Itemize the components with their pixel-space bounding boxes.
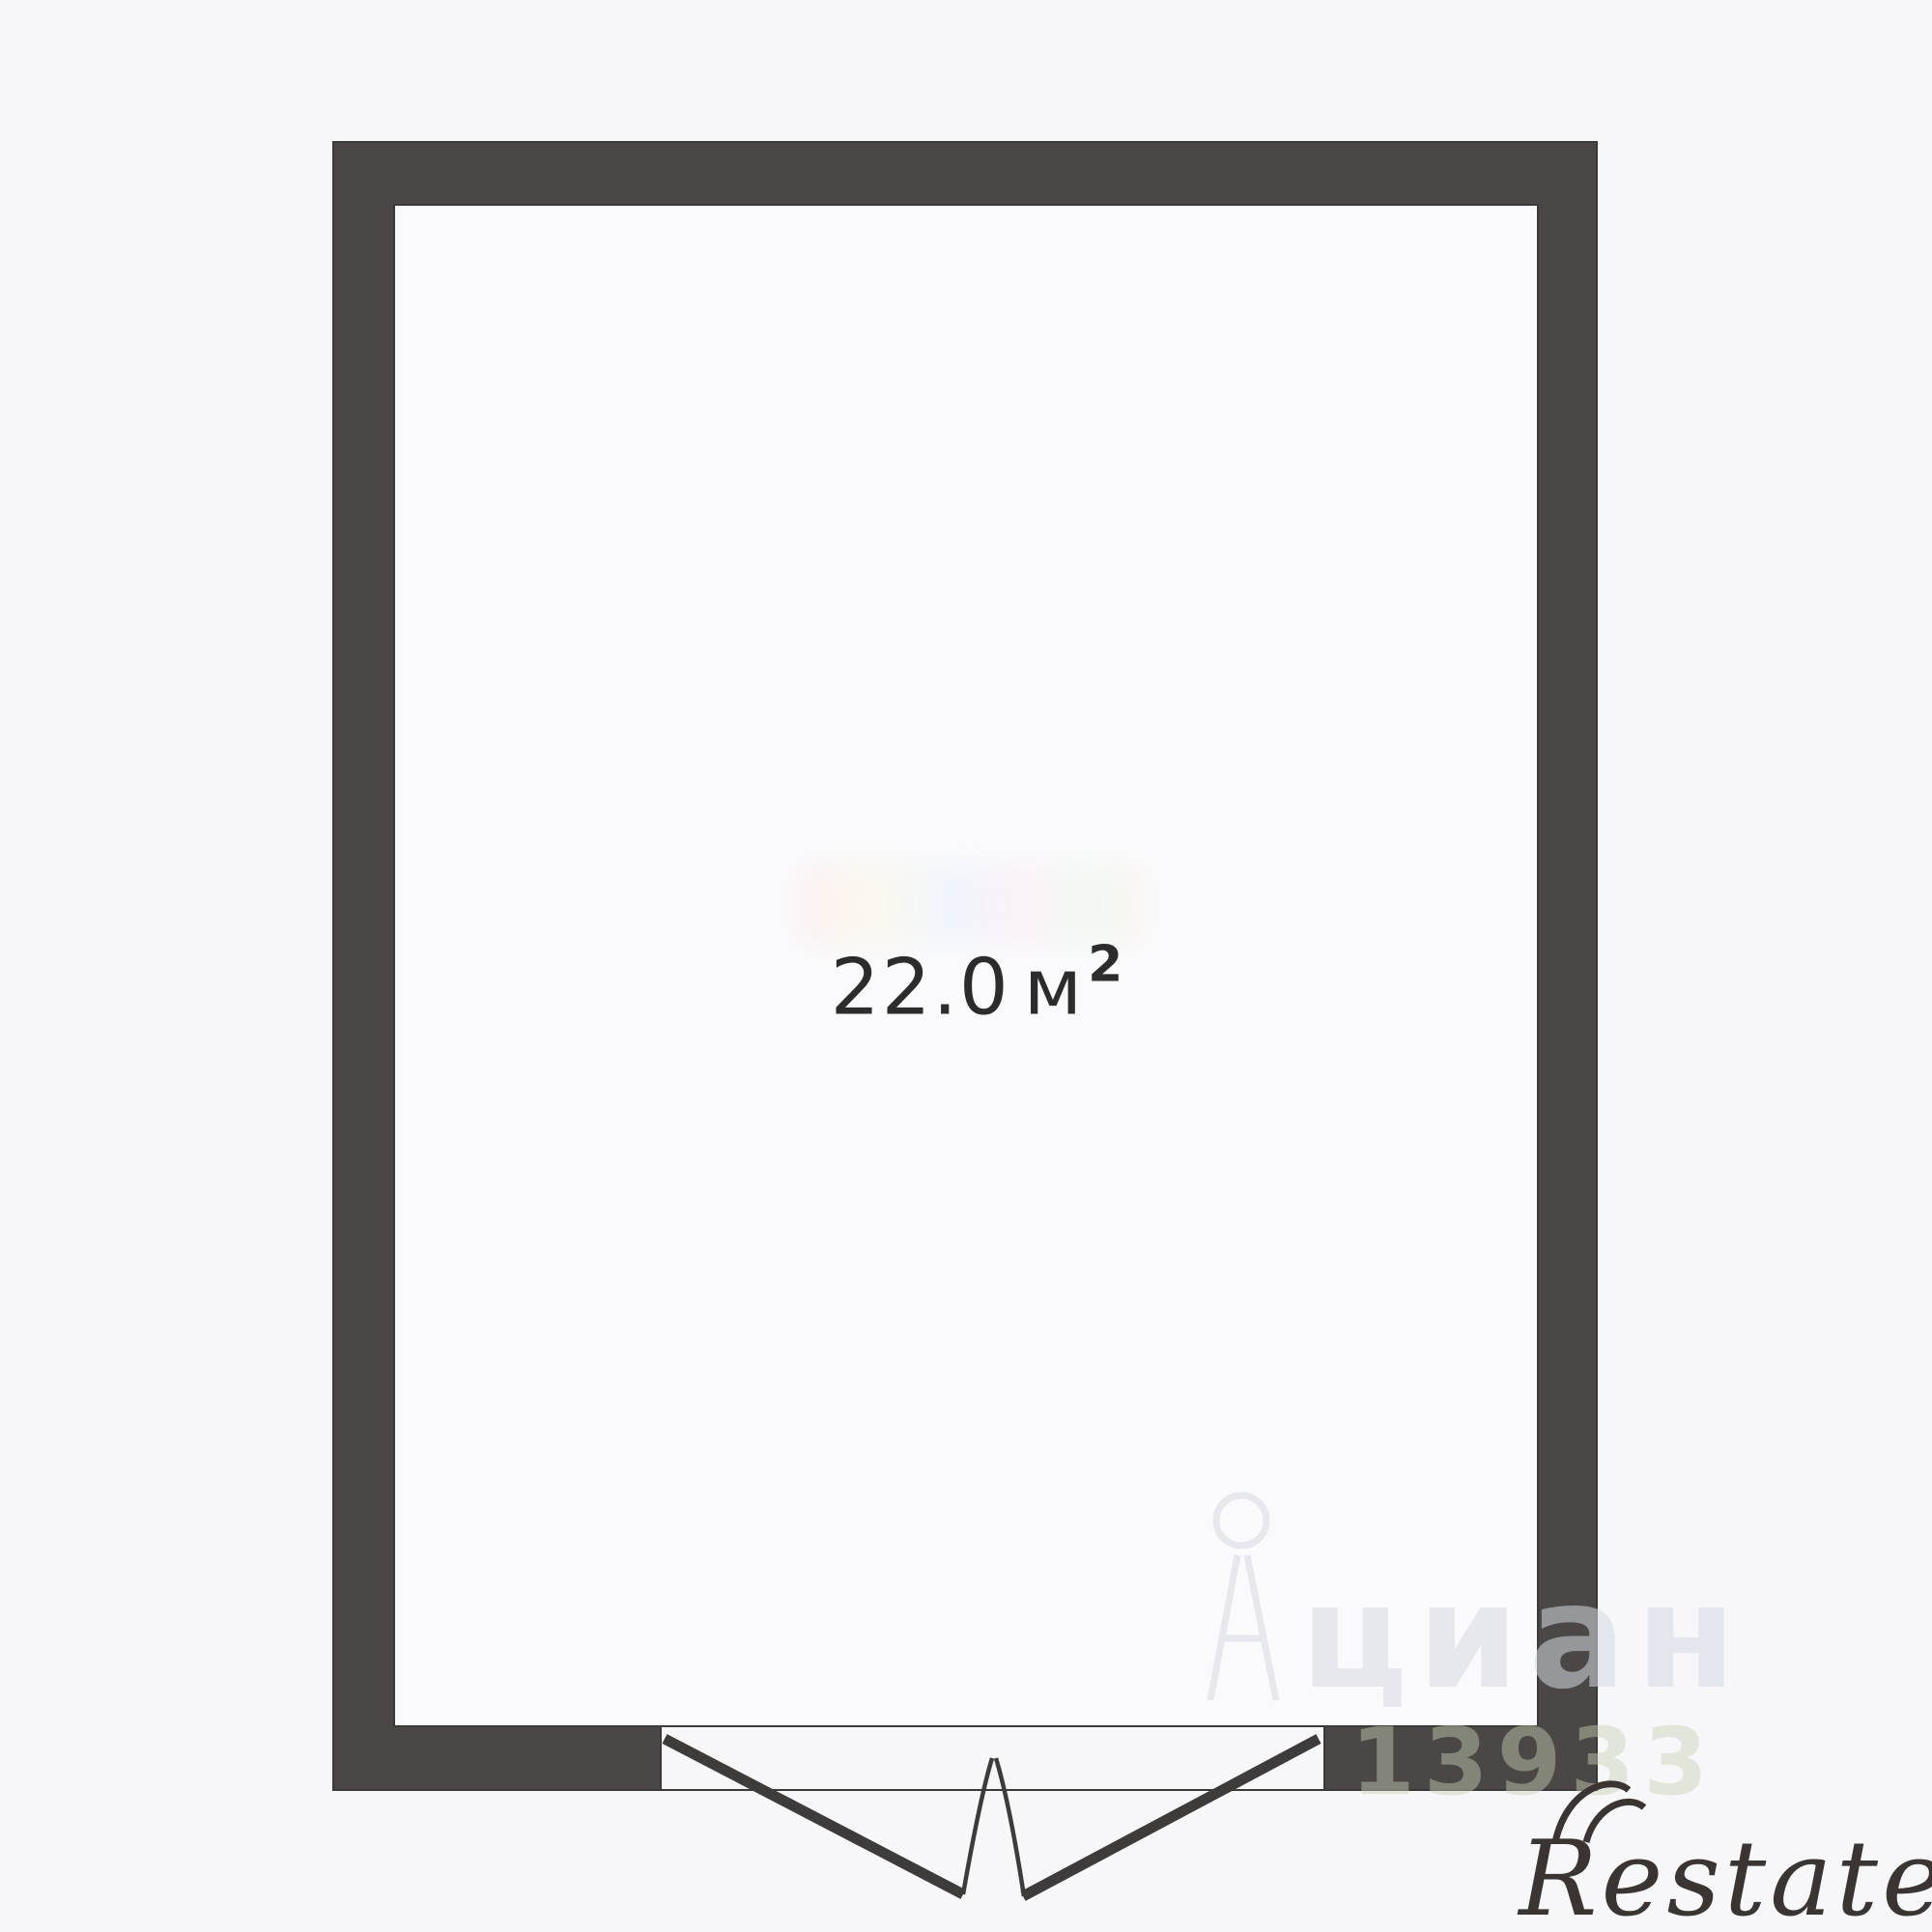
door-swing-line-left <box>963 1758 992 1894</box>
cian-watermark-logo-text: циан <box>1300 1553 1746 1721</box>
faint-watermark-smudge <box>798 866 1142 945</box>
cian-pin-head <box>1216 1495 1266 1546</box>
area-value: 22.0 <box>831 943 1010 1033</box>
area-superscript: 2 <box>1088 936 1124 994</box>
door-leaf-right <box>1023 1739 1319 1896</box>
door-leaf-left <box>665 1739 963 1894</box>
cian-pin-legs <box>1210 1555 1276 1700</box>
restate-watermark: Restate <box>1519 1819 1932 1932</box>
floorplan-canvas: 22.0м2 циан 13933 Restate <box>0 0 1932 1932</box>
room-area-label: 22.0м2 <box>831 943 1122 1033</box>
restate-swash-icon <box>1548 1765 1663 1846</box>
area-unit: м <box>1024 943 1084 1033</box>
cian-pin-icon <box>1191 1482 1297 1706</box>
door-swing-line-right <box>996 1758 1024 1896</box>
